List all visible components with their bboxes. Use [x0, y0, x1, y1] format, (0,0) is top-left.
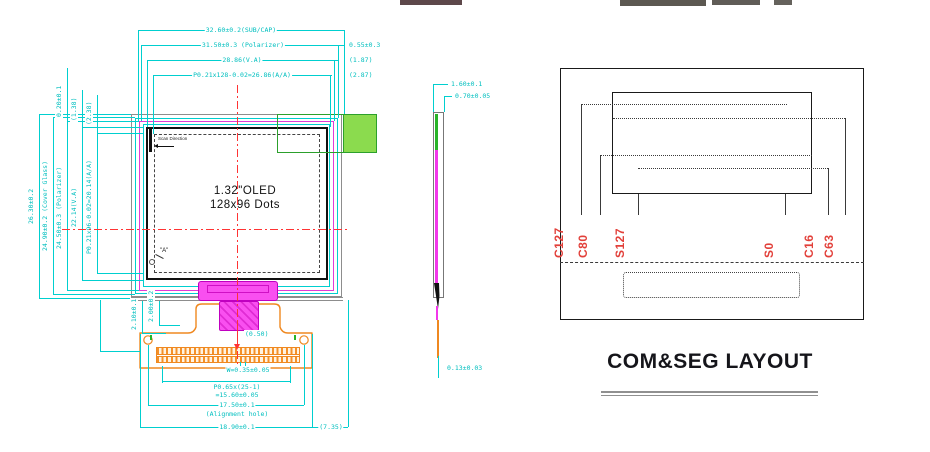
extension-line: [140, 334, 141, 427]
dim-line: [142, 301, 143, 333]
extension-line: [67, 290, 139, 291]
display-resolution-label: 128x96 Dots: [210, 199, 280, 211]
extension-line: [444, 96, 445, 112]
dim-line: [53, 117, 54, 295]
dim-label-panel-thickness: 0.70±0.05: [454, 92, 491, 100]
dim-line: [82, 90, 83, 281]
dim-label-pin-pitch-total: =15.60±0.05: [214, 391, 259, 399]
pin-label-s127: S127: [614, 228, 627, 258]
extension-line: [162, 366, 163, 383]
dim-label-hole-span: 17.50±0.1: [218, 401, 255, 409]
dim-label-total-thickness: 1.60±0.1: [450, 80, 483, 88]
cropped-text-artifact: [620, 0, 706, 6]
dim-label-pin-width: W=0.35±0.05: [225, 366, 270, 374]
dim-label-aa-h: P0.21x96-0.02=20.14(A/A): [85, 159, 93, 255]
connector-stem: [219, 301, 259, 331]
extension-line: [330, 75, 331, 127]
route-lead: [581, 104, 582, 215]
extension-line: [312, 334, 313, 427]
route-lead: [785, 194, 786, 215]
extension-line: [53, 117, 135, 118]
dim-label-polarizer-h: 24.50±0.3 (Polarizer): [55, 166, 63, 250]
driver-ic-outline: [623, 272, 800, 298]
extension-line: [82, 127, 143, 128]
dim-label-aa-w: P0.21x128-0.02=26.86(A/A): [192, 71, 292, 79]
dim-line: [433, 84, 448, 85]
cropped-text-artifact: [774, 0, 792, 5]
connector-tab: [198, 281, 278, 301]
scan-start-mark: [149, 129, 152, 152]
dim-label-fpc-width: 18.90±0.1: [218, 423, 255, 431]
extension-line: [39, 298, 131, 299]
dim-label-pin-pitch: P0.65x(25-1): [213, 383, 262, 391]
extension-line: [148, 345, 149, 405]
extension-line: [304, 345, 305, 405]
center-arrow: [237, 322, 238, 344]
dim-label-sub-h: 26.30±0.2: [27, 188, 35, 225]
dim-label-polarizer-w: 31.50±0.3 (Polarizer): [201, 41, 285, 49]
extension-line: [53, 294, 135, 295]
route-lead: [828, 168, 829, 215]
route-lead: [845, 118, 846, 215]
dim-label-ledge: 2.10±0.1: [130, 298, 138, 331]
dim-label-top-gap: 0.20±0.1: [55, 85, 63, 118]
extension-line: [433, 84, 434, 112]
com-route: [600, 155, 812, 156]
dim-line: [39, 114, 40, 299]
dim-label-edge-gap: (2.87): [348, 71, 373, 79]
pin-label-s0: S0: [763, 242, 776, 258]
side-fpc-magenta: [436, 306, 438, 320]
oled-module-drawing: 32.60±0.2(SUB/CAP) 31.50±0.3 (Polarizer)…: [0, 0, 930, 452]
extension-line: [334, 60, 335, 121]
extension-line: [138, 30, 139, 121]
connector-tab-detail: [207, 285, 269, 293]
alignment-hole-right: [300, 336, 308, 344]
horizontal-centerline: [62, 229, 350, 230]
pin-row-separator: [157, 354, 299, 357]
route-lead: [600, 155, 601, 215]
dim-label-fpc-thickness: 0.13±0.03: [446, 364, 483, 372]
cropped-text-artifact: [400, 0, 462, 5]
dim-label-top-gap: (1.38): [70, 97, 78, 122]
extension-line: [142, 333, 166, 334]
extension-line: [100, 351, 140, 352]
corner-a-label: "A": [160, 248, 168, 254]
dim-label-va-w: 28.86(V.A): [221, 56, 262, 64]
com-route: [613, 118, 845, 119]
dim-label-ledge: 2.00±0.2: [147, 290, 155, 323]
corner-a-circle: [149, 259, 155, 265]
dim-line: [444, 96, 452, 97]
highlight-region-fill: [343, 114, 377, 153]
extension-line: [348, 300, 349, 427]
scan-direction-arrowhead-icon: [154, 144, 158, 148]
dim-label-sub-cap: 32.60±0.2(SUB/CAP): [205, 26, 277, 34]
extension-line: [344, 30, 345, 114]
extension-line: [97, 133, 143, 134]
extension-line: [338, 45, 339, 118]
comseg-display-rect: [612, 92, 812, 194]
cropped-text-artifact: [712, 0, 760, 5]
glass-ledge-separator: [560, 262, 864, 263]
dim-label-fpc-right: (7.35): [318, 423, 343, 431]
scan-direction-arrow-icon: [158, 146, 174, 147]
dim-label-va-h: 22.14(V.A): [70, 187, 78, 228]
vertical-centerline: [237, 85, 238, 322]
pin-label-c63: C63: [823, 234, 836, 258]
extension-line: [97, 273, 143, 274]
dim-line: [159, 301, 160, 325]
extension-line: [438, 356, 439, 378]
dim-label-top-gap: (2.38): [85, 101, 93, 126]
fpc-pin-strip: [156, 347, 300, 363]
dim-label-edge-gap: 0.55±0.3: [348, 41, 381, 49]
dim-line: [67, 68, 68, 291]
comseg-title: COM&SEG LAYOUT: [607, 350, 813, 374]
display-size-label: 1.32"OLED: [214, 185, 276, 197]
side-glass-stripe: [435, 114, 438, 150]
route-lead: [638, 194, 639, 215]
dim-label-hole-note: (Alignment hole): [205, 410, 270, 418]
pin-label-c16: C16: [803, 234, 816, 258]
dim-label-cover-glass-h: 24.90±0.2 (Cover Glass): [41, 160, 49, 252]
extension-line: [290, 366, 291, 383]
dim-label-edge-gap: (1.87): [348, 56, 373, 64]
center-arrowhead-icon: [234, 344, 240, 350]
title-underline: [601, 395, 818, 396]
com-route: [638, 168, 828, 169]
extension-line: [159, 325, 180, 326]
com-route: [581, 104, 787, 105]
extension-line: [147, 60, 148, 127]
pin-label-c80: C80: [577, 234, 590, 258]
side-fpc-orange: [437, 320, 439, 358]
extension-line: [141, 45, 142, 121]
pin-label-c127: C127: [553, 227, 566, 258]
side-polarizer-stripe: [435, 150, 438, 283]
dim-line: [97, 95, 98, 274]
extension-line: [153, 75, 154, 134]
scan-direction-label: Scan Direction: [158, 136, 187, 141]
extension-line: [100, 300, 101, 351]
extension-line: [82, 280, 143, 281]
title-underline: [601, 391, 818, 393]
dim-line: [162, 381, 290, 382]
dim-label-center-gap: (0.50): [244, 330, 269, 338]
